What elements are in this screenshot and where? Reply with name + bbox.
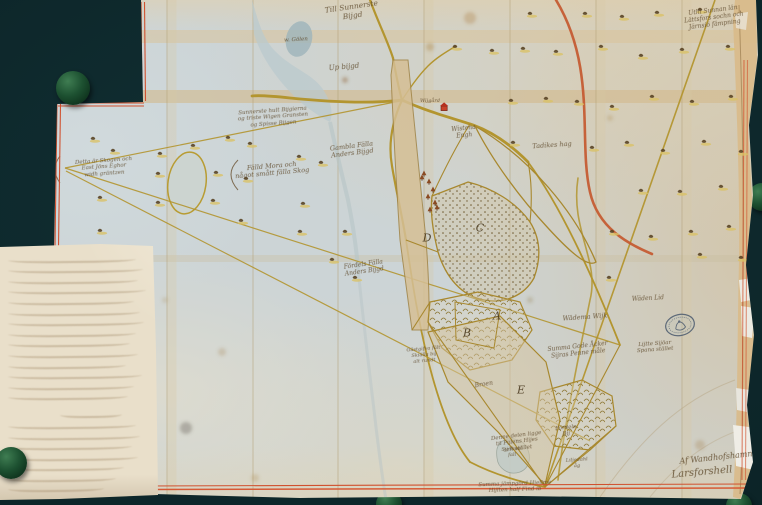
map-label: Fälld Mora ochnågot smått fälla Skog — [234, 160, 309, 181]
map-label: Till SunnersteBijgd — [324, 0, 379, 24]
map-label: WistenaEngh — [451, 125, 477, 141]
map-label: Wädema Wijk — [562, 312, 607, 323]
map-label: Fördels FällaAnders Bijgd — [344, 259, 385, 278]
map-label: Summa Gode ÅckerSijras Penne måle — [547, 341, 608, 361]
map-label: Af Wandhofshamn — [679, 449, 753, 466]
map-label: Broen — [474, 381, 493, 391]
magnet-disc — [56, 71, 90, 105]
photo-scene: Till SunnersteBijgdUthi Sunnan länLättsf… — [0, 0, 762, 505]
parcel-letter: D — [423, 232, 432, 245]
map-label: Summa jämpgörd HiellmeHijlten half Find … — [478, 480, 551, 495]
map-label: Up bijgd — [328, 62, 359, 73]
map-label: FördelsBij — [555, 424, 577, 439]
map-label: Uthi Sunnan länLättsfors sochn ochJärnsi… — [683, 4, 745, 32]
map-label: Lijtte SijöarSpana stället — [636, 340, 673, 355]
map-label: Liljedahlåg — [566, 457, 589, 470]
map-label: w. Gölen — [284, 36, 308, 44]
parcel-letter: E — [517, 384, 525, 397]
map-label: Detta är Skogen ochEast Jöns Eghorwidh g… — [75, 156, 133, 179]
map-label: Gästgifva fältSkiälla bijalt rundt — [406, 346, 441, 366]
parcel-letter: A — [493, 310, 501, 323]
parcel-letter: C — [476, 222, 484, 235]
map-label: Wäden Lid — [632, 295, 664, 304]
map-label: Sunnerste hult Bijgiernaog triste Wigen … — [237, 106, 308, 130]
map-label: Larsforshell — [671, 464, 733, 481]
map-label: Sijöhualfall — [501, 446, 522, 459]
map-label: Gambla FällaAnders Bijgd — [330, 140, 375, 160]
parcel-letter: B — [463, 327, 471, 340]
map-label: Wijgård — [420, 99, 440, 105]
map-label: Tadikes hag — [532, 141, 572, 151]
